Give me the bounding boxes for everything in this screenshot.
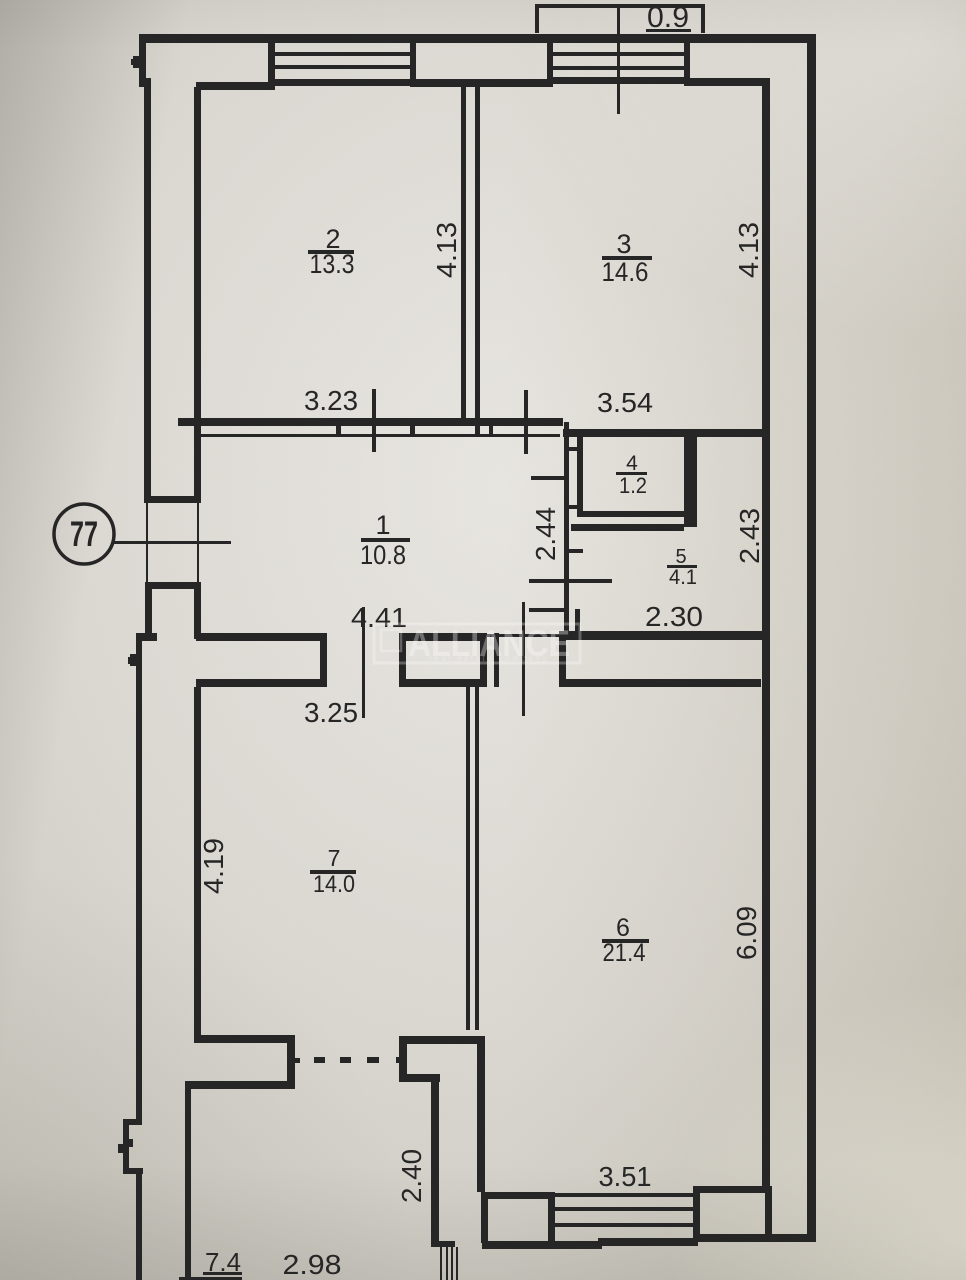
svg-text:3.23: 3.23 <box>304 385 358 416</box>
svg-text:real estate company: real estate company <box>429 654 549 663</box>
svg-text:4.41: 4.41 <box>351 602 407 633</box>
svg-text:4.13: 4.13 <box>431 222 462 278</box>
svg-text:6: 6 <box>616 914 630 942</box>
svg-text:14.6: 14.6 <box>602 257 649 287</box>
svg-text:3.25: 3.25 <box>304 697 358 728</box>
svg-text:2.44: 2.44 <box>530 507 561 561</box>
svg-text:2.43: 2.43 <box>734 508 765 564</box>
svg-text:21.4: 21.4 <box>603 939 646 967</box>
svg-text:4.1: 4.1 <box>669 566 697 589</box>
svg-text:5: 5 <box>675 546 686 568</box>
svg-text:4.19: 4.19 <box>198 838 229 894</box>
svg-text:4: 4 <box>626 452 638 475</box>
svg-text:77: 77 <box>70 515 98 554</box>
svg-text:4.13: 4.13 <box>733 222 764 278</box>
svg-text:3: 3 <box>616 229 631 259</box>
svg-text:2.40: 2.40 <box>396 1149 427 1203</box>
svg-text:2.30: 2.30 <box>645 601 703 632</box>
svg-text:2.98: 2.98 <box>283 1249 342 1280</box>
svg-text:1: 1 <box>375 510 390 540</box>
svg-text:10.8: 10.8 <box>360 540 406 570</box>
svg-text:7: 7 <box>328 845 341 871</box>
svg-text:3.54: 3.54 <box>597 387 653 418</box>
svg-text:13.3: 13.3 <box>310 249 355 279</box>
svg-text:3.51: 3.51 <box>599 1161 652 1192</box>
svg-text:1.2: 1.2 <box>619 473 647 498</box>
svg-text:14.0: 14.0 <box>313 871 355 898</box>
svg-text:6.09: 6.09 <box>731 906 762 960</box>
